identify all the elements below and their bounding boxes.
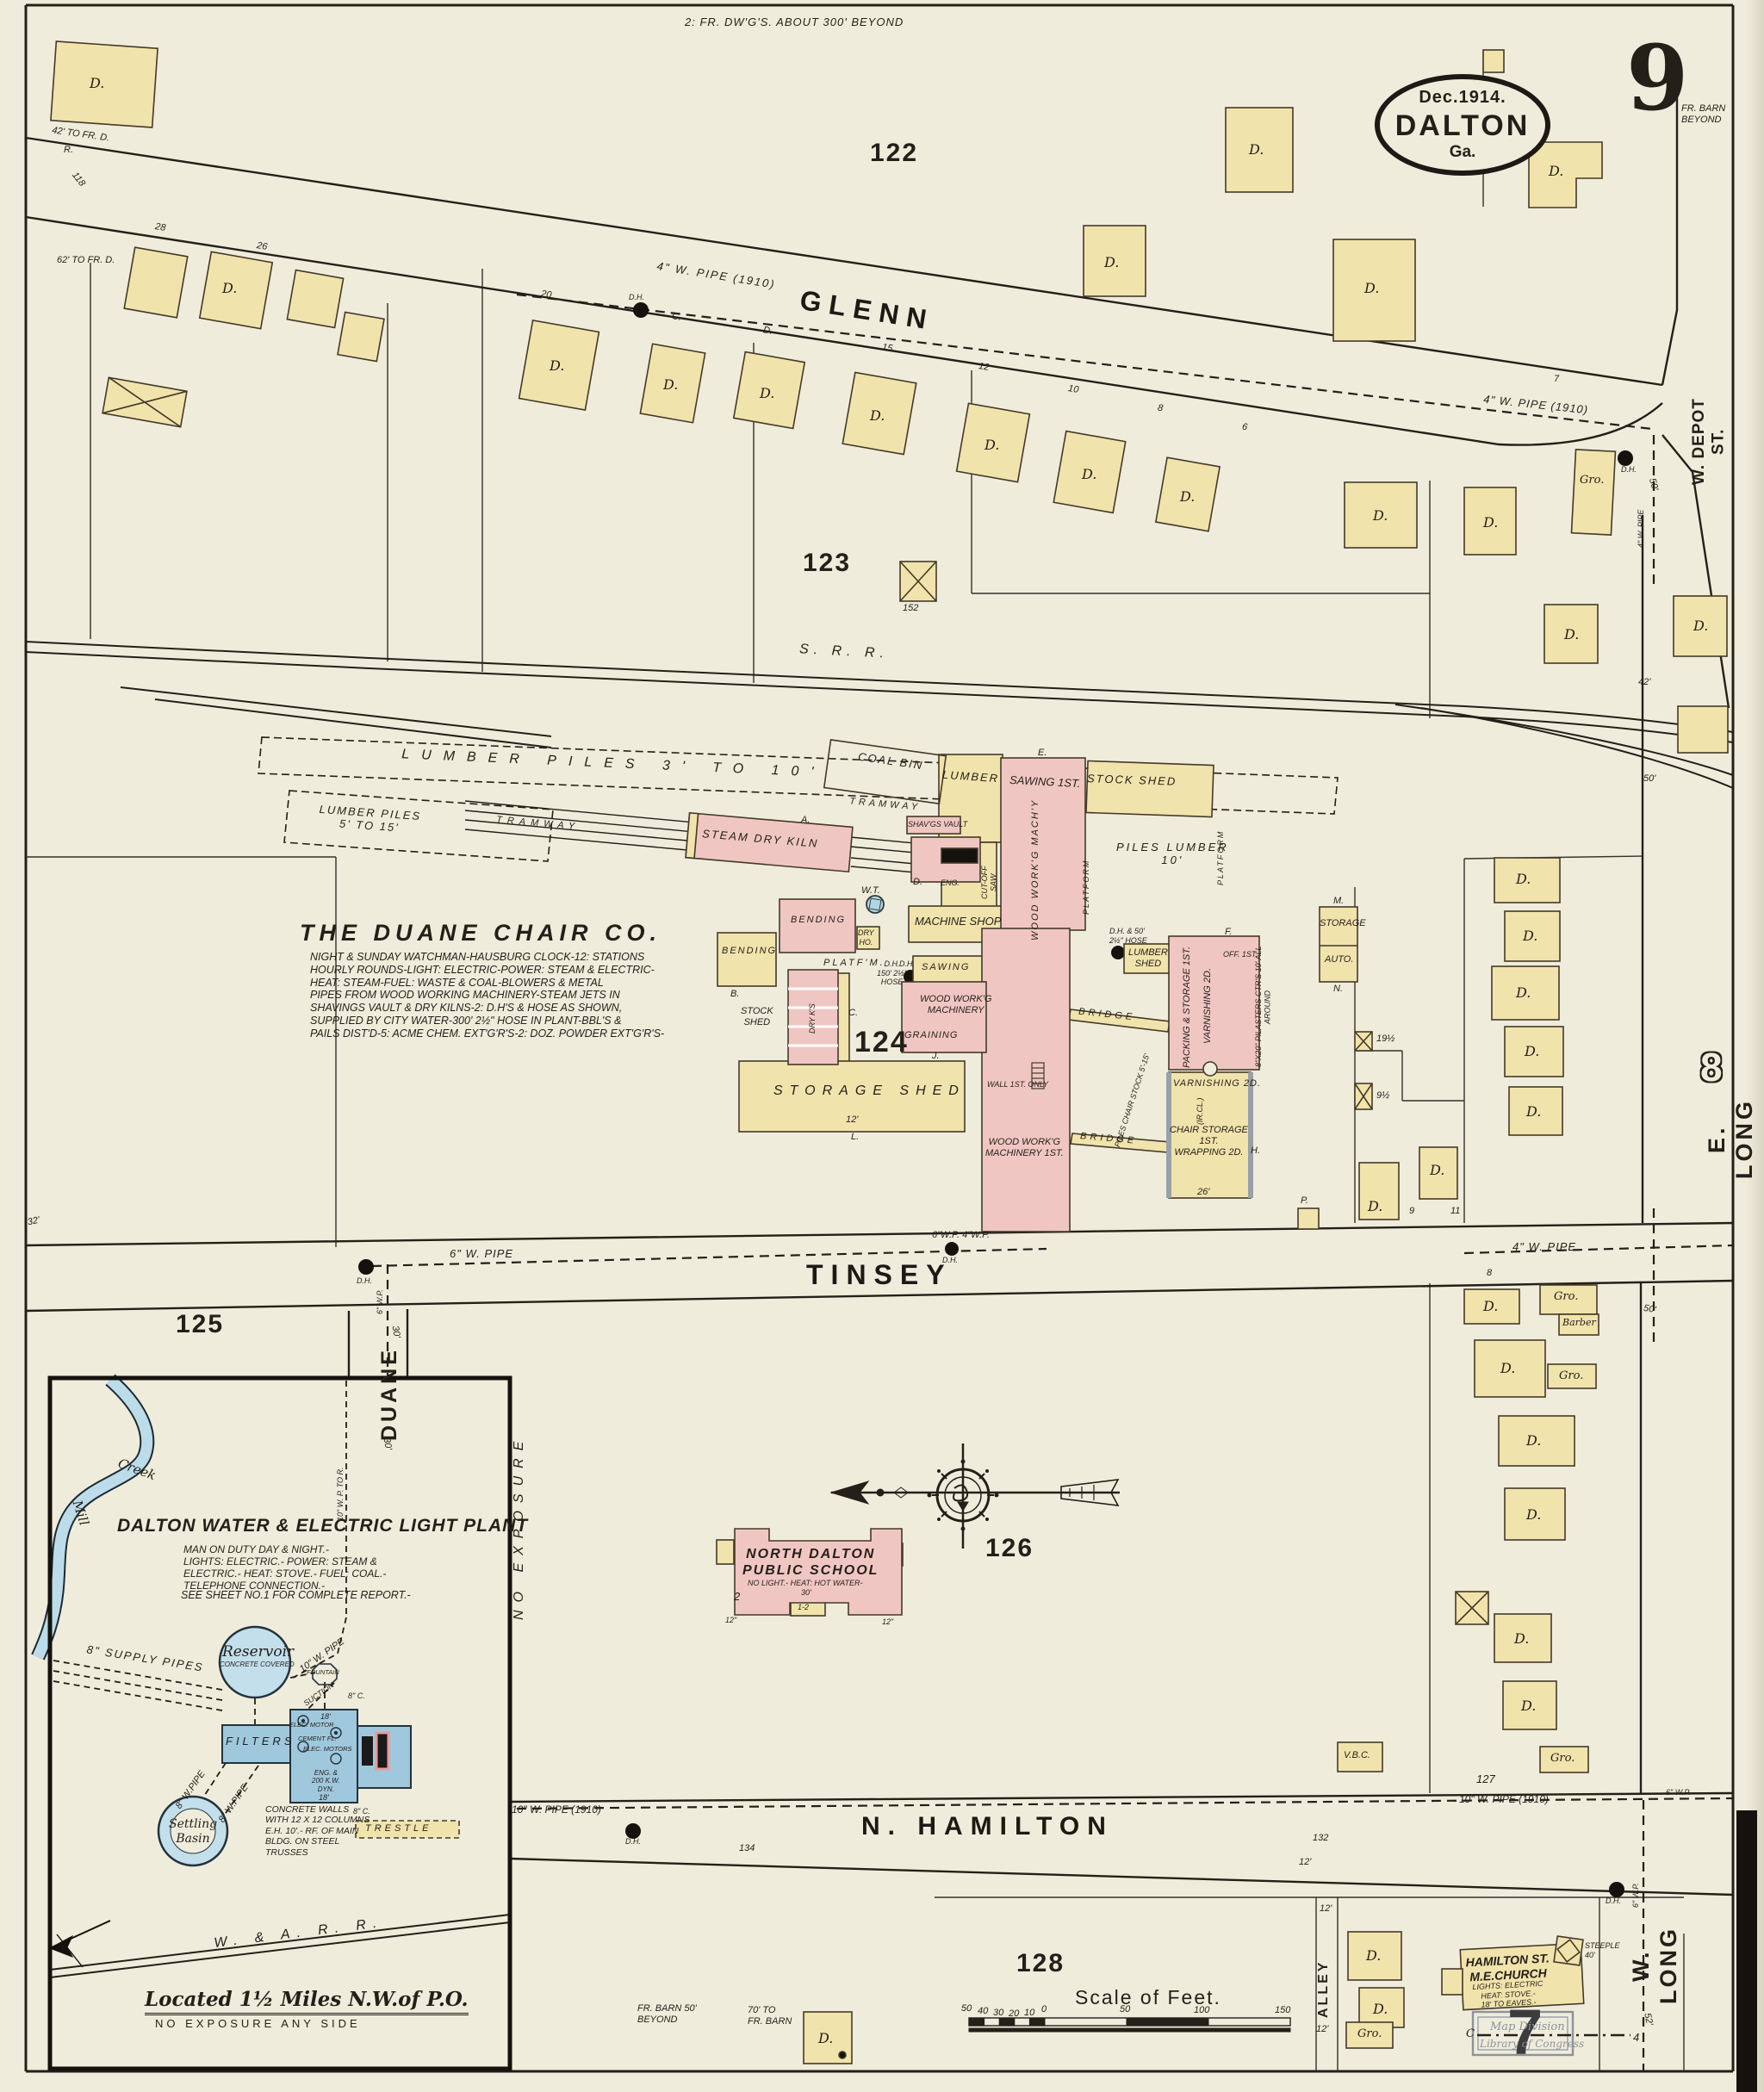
woodworking2-label: WOOD WORK'G MACHINERY [920,994,991,1016]
dry-house-label: DRY HO. [858,928,874,947]
section-p: P. [1301,1195,1308,1207]
lot-15: 15 [881,342,893,355]
mark-50-tinsey: 50' [1643,1303,1656,1316]
section-c: C. [848,1008,858,1019]
dwelling-label: D. [818,2031,833,2047]
piles-lumber-label: PILES LUMBER 10' [1116,841,1229,867]
dim18-label-2: 18' [319,1793,329,1803]
hydrant-hose-a: D.H. & 50' 2½" HOSE [1109,927,1147,945]
located-note: Located 1½ Miles N.W.of P.O. [145,1988,469,2015]
scale-50l: 50 [961,2003,972,2014]
duane-30-upper: 30' [389,1325,402,1338]
trestle-label: TRESTLE [365,1823,432,1834]
mark-152: 152 [903,603,918,614]
platform-label-1: PLATFORM [1082,844,1091,930]
platfm-label: PLATF'M. [823,958,885,969]
platform-label-2: PLATFORM [1216,816,1226,898]
woodworking-1st-label: WOOD WORK'G MACHINERY 1ST. [985,1137,1064,1159]
block-123: 123 [803,548,851,578]
dwelling-label: D. [90,76,104,92]
reservoir-note: CONCRETE COVERED [220,1661,295,1668]
scale-30: 30 [993,2008,1003,2019]
title-oval: Dec.1914. DALTON Ga. [1375,74,1550,176]
grocery-label: Gro. [1559,1369,1583,1382]
dry-kilns-label: DRY K'S [808,989,817,1049]
bending-label-1: BENDING [722,946,777,957]
grocery-label: Gro. [1550,1752,1575,1765]
street-duane: DUANE [377,1340,403,1449]
hydrant-label-tinsey-m: D.H. [942,1256,958,1265]
section-l: L. [851,1132,859,1143]
pilasters-note: 8"X20" PILASTERS CTR'S 10' ALL AROUND [1254,942,1272,1071]
dwelling-label: D. [1430,1163,1444,1179]
school-note: NO LIGHT.- HEAT: HOT WATER- [748,1579,863,1588]
settling-basin-label: Settling Basin [169,1817,217,1846]
dwelling-label: D. [1180,489,1195,506]
packing-label: PACKING & STORAGE 1ST. [1182,946,1193,1068]
dwelling-label: D. [1516,872,1531,888]
hydrant-label-depot: D.H. [1621,465,1637,475]
street-w-depot: W. DEPOT ST. [1690,394,1729,489]
lot-26: 26 [256,240,268,253]
dwelling-label: D. [1693,618,1708,635]
dwelling-label: D. [1368,1199,1382,1215]
scale-150: 150 [1275,2005,1290,2016]
grocery-label: Gro. [1554,1290,1578,1303]
dwelling-label: D. [1373,508,1388,525]
hydrant-label-wlong: D.H. [1606,1896,1621,1906]
dwelling-label: D. [1526,1507,1541,1524]
mark-19half: 19½ [1376,1034,1394,1045]
street-lines [26,96,1733,1895]
dwelling-label: D. [1104,255,1119,271]
dwelling-label: D. [1514,1631,1529,1648]
section-e: E. [1038,748,1047,759]
storage-12: 12' [846,1114,858,1126]
duane-pipe-label: 6" W.P. [376,1280,385,1325]
dwelling-label: D. [760,386,774,402]
fr-barn-note: FR. BARN BEYOND [1681,103,1725,126]
dwelling-label: D. [550,358,564,375]
sanborn-map-sheet: 2: FR. DW'G'S. ABOUT 300' BEYOND 9 Dec.1… [0,0,1764,2092]
lot-28: 28 [154,221,166,234]
street-w-long: W. LONG [1628,1917,1683,2014]
school-1-2: 1-2 [798,1603,809,1612]
mark-132: 132 [1313,1833,1328,1844]
school-name: NORTH DALTON PUBLIC SCHOOL [742,1547,879,1580]
hydrant-label-hamilton: D.H. [625,1837,641,1847]
dwelling-label: D. [1525,1044,1539,1060]
scale-40: 40 [978,2006,988,2017]
chair-storage-label: CHAIR STORAGE 1ST. WRAPPING 2D. [1170,1125,1248,1158]
cement-floor-label: CEMENT FL. [298,1735,337,1743]
stock-shed2-label: STOCK SHED [741,1006,773,1028]
dwelling-label: D. [1483,1299,1498,1315]
hydrant-label-glenn: D.H. [629,293,644,302]
dwelling-label: D. [663,377,678,394]
barber-label: Barber [1562,1318,1596,1329]
mark-9half: 9½ [1376,1090,1389,1102]
varnishing-vert-label: VARNISHING 2D. [1202,958,1214,1054]
tinsey-pipe6-label: 6" W. PIPE [450,1247,513,1260]
pipe10-to-r-label: 10" W. P. TO R. [336,1464,345,1524]
section-h: H. [1251,1145,1260,1157]
dwelling-label: D. [1523,928,1537,945]
eng-dyn-label: ENG. & 200 K.W. DYN. [312,1769,340,1793]
wlong-pipe-label: 6" W.P. [1631,1876,1641,1915]
lumber-shed-label: LUMBER SHED [1128,947,1168,970]
lot-12: 12 [978,361,990,374]
dwelling-label: D. [1526,1433,1541,1450]
school-12in-right: 12" [882,1617,893,1627]
school-12in-left: 12" [725,1616,736,1625]
lot-20: 20 [540,289,552,301]
steeple-note: STEEPLE 40' [1585,1941,1620,1959]
machine-shop-label: MACHINE SHOP [915,915,1001,928]
water-features [38,896,884,1865]
alley-12-top: 12' [1320,1903,1332,1915]
duane-30-lower: 30' [381,1437,394,1450]
dwelling-label: D. [1516,985,1531,1002]
lot-9: 9 [1409,1206,1414,1217]
title-state: Ga. [1450,143,1476,162]
sheet-number: 9 [1626,26,1688,132]
dwelling-label: D. [1521,1698,1536,1715]
tinsey-pipes-mid-label: 6"W.P. 4"W.P. [932,1230,990,1241]
reservoir-label: Reservoir [222,1643,294,1661]
cast8-label-2: 8" C. [353,1807,370,1816]
auto-label: AUTO. [1325,954,1353,965]
dwelling-label: D. [1500,1361,1515,1377]
section-f: F. [1225,927,1232,938]
vbc-label: V.B.C. [1344,1750,1370,1761]
street-alley: ALLEY [1316,1955,1332,2022]
hydrant-label-tinsey-w: D.H. [357,1276,372,1286]
no-exposure-any-side: NO EXPOSURE ANY SIDE [155,2017,361,2030]
mark-52: 52' [1641,2012,1655,2027]
fr-barn-70-note: 70' TO FR. BARN [748,2005,792,2027]
grocery-label: Gro. [1357,2027,1382,2040]
engine-label: ENG. [941,878,960,888]
stamp-line2: Library of Congress [1480,2038,1584,2050]
block-line-c: C [1466,2027,1475,2040]
section-n: N. [1333,984,1343,995]
chairco-report: NIGHT & SUNDAY WATCHMAN-HAUSBURG CLOCK-1… [310,951,664,1040]
section-b: B. [730,989,739,1000]
stamp-line1: Map Division [1490,2021,1565,2033]
dwelling-label: D. [1373,2002,1388,2018]
lot-10: 10 [1067,383,1079,396]
shavings-vault-label: SHAV'GS VAULT [908,820,967,829]
scale-10: 10 [1024,2008,1034,2019]
school-2: 2 [734,1590,740,1603]
block-127: 127 [1476,1772,1495,1785]
mark-62-to-fr: 62' TO FR. D. [57,255,115,266]
block-128: 128 [1016,1948,1065,1978]
lot-11: 11 [1450,1206,1460,1217]
scale-bar [969,2018,1290,2032]
dim18-label-1: 18' [320,1712,331,1722]
block-124: 124 [854,1025,909,1059]
dwelling-label: D. [1549,164,1563,180]
school-30: 30' [801,1588,811,1598]
plant-report: MAN ON DUTY DAY & NIGHT.- LIGHTS: ELECTR… [183,1543,386,1592]
adjoining-sheet-8: 8 [1700,1044,1723,1090]
graining-label: GRAINING [904,1030,958,1041]
dwelling-label: D. [1364,281,1379,297]
bending-label-2: BENDING [791,915,846,926]
block-line-4: 4 [1633,2031,1639,2044]
section-d: D. [913,877,922,888]
mark-50-elong: 50' [1643,773,1655,785]
plant-title: DALTON WATER & ELECTRIC LIGHT PLANT [117,1516,528,1537]
cutoff-saw-label: CUT-OFF SAW [980,861,998,904]
lot-7: 7 [1554,374,1559,385]
mark-134: 134 [739,1843,755,1854]
dwelling-label: D. [1249,142,1264,158]
section-a: A. [801,815,810,826]
plant-see-sheet: SEE SHEET NO.1 FOR COMPLETE REPORT.- [181,1589,411,1602]
dwelling-label: D. [1082,467,1096,483]
scale-0: 0 [1041,2004,1047,2015]
street-n-hamilton: N. HAMILTON [861,1811,1114,1841]
alley-12-bottom: 12' [1316,2024,1328,2035]
dwelling-label: D. [1564,627,1579,643]
dwelling-label: D. [222,281,237,297]
fountain-label: FOUNTAIN [307,1669,339,1677]
cast8-label-1: 8" C. [348,1692,365,1701]
lot-d: D. [762,325,773,338]
elec-motors-label: ELEC. MOTORS [303,1746,352,1754]
tinsey-pipe4-label: 4" W. PIPE [1512,1240,1576,1253]
title-date: Dec.1914. [1419,88,1506,109]
mark-42-elong: 42' [1638,677,1650,688]
dwelling-label: D. [984,438,999,454]
mark-r: R. [64,145,73,156]
lot-8-tinsey: 8 [1487,1268,1492,1279]
sawing2-label: SAWING [922,962,970,973]
title-city: DALTON [1395,109,1531,143]
block-125: 125 [176,1309,224,1339]
elec-motor-label: ELEC. MOTOR [289,1722,334,1729]
section-m: M. [1333,896,1344,907]
top-margin-note: 2: FR. DW'G'S. ABOUT 300' BEYOND [685,16,904,28]
dwelling-label: D. [1366,1948,1381,1965]
grocery-label: Gro. [1580,474,1604,487]
lot-c: C. [671,311,682,324]
mark-12-block: 12' [1299,1857,1311,1868]
elong-pipe4-label: 4" W. PIPE [1637,498,1646,560]
block-122: 122 [870,138,918,168]
dwelling-label: D. [1526,1104,1541,1120]
wlong-pipe-corner-label: 6" W.P. [1666,1788,1691,1797]
filters-label: FILTERS [226,1735,295,1747]
street-e-long: E. LONG [1704,1096,1759,1182]
storage-m-label: STORAGE [1320,918,1366,929]
varnishing2-label: VARNISHING 2D. [1173,1078,1261,1089]
section-j: J. [932,1051,940,1062]
water-tank-label: W.T. [861,885,880,897]
wall-note: WALL 1ST. ONLY [987,1080,1048,1089]
street-tinsey: TINSEY [806,1259,953,1292]
church-note: LIGHTS: ELECTRIC HEAT: STOVE.- 18' TO EA… [1472,1979,1544,2010]
storage-shed-label: STORAGE SHED [773,1083,966,1100]
dwelling-label: D. [870,408,885,425]
hamilton-pipe-label-w: 10" W. PIPE (1910) [512,1803,601,1816]
office-label: OFF. 1ST. [1223,950,1258,959]
dwelling-label: D. [1483,515,1498,531]
fr-barn-50-note: FR. BARN 50' BEYOND [637,2003,697,2026]
hydrant-label-factory: D.H. [899,959,915,969]
scale-50r: 50 [1120,2004,1130,2015]
woodworking-mach-vert-label: WOOD WORK'G MACH'Y [1030,792,1041,947]
scale-20: 20 [1009,2008,1019,2020]
block-126: 126 [985,1533,1034,1563]
mark-26ft: 26' [1197,1187,1209,1198]
chairco-title: THE DUANE CHAIR CO. [300,920,661,947]
scale-100: 100 [1194,2005,1209,2016]
hamilton-pipe-label-e: 10" W. PIPE (1910) [1459,1793,1549,1805]
